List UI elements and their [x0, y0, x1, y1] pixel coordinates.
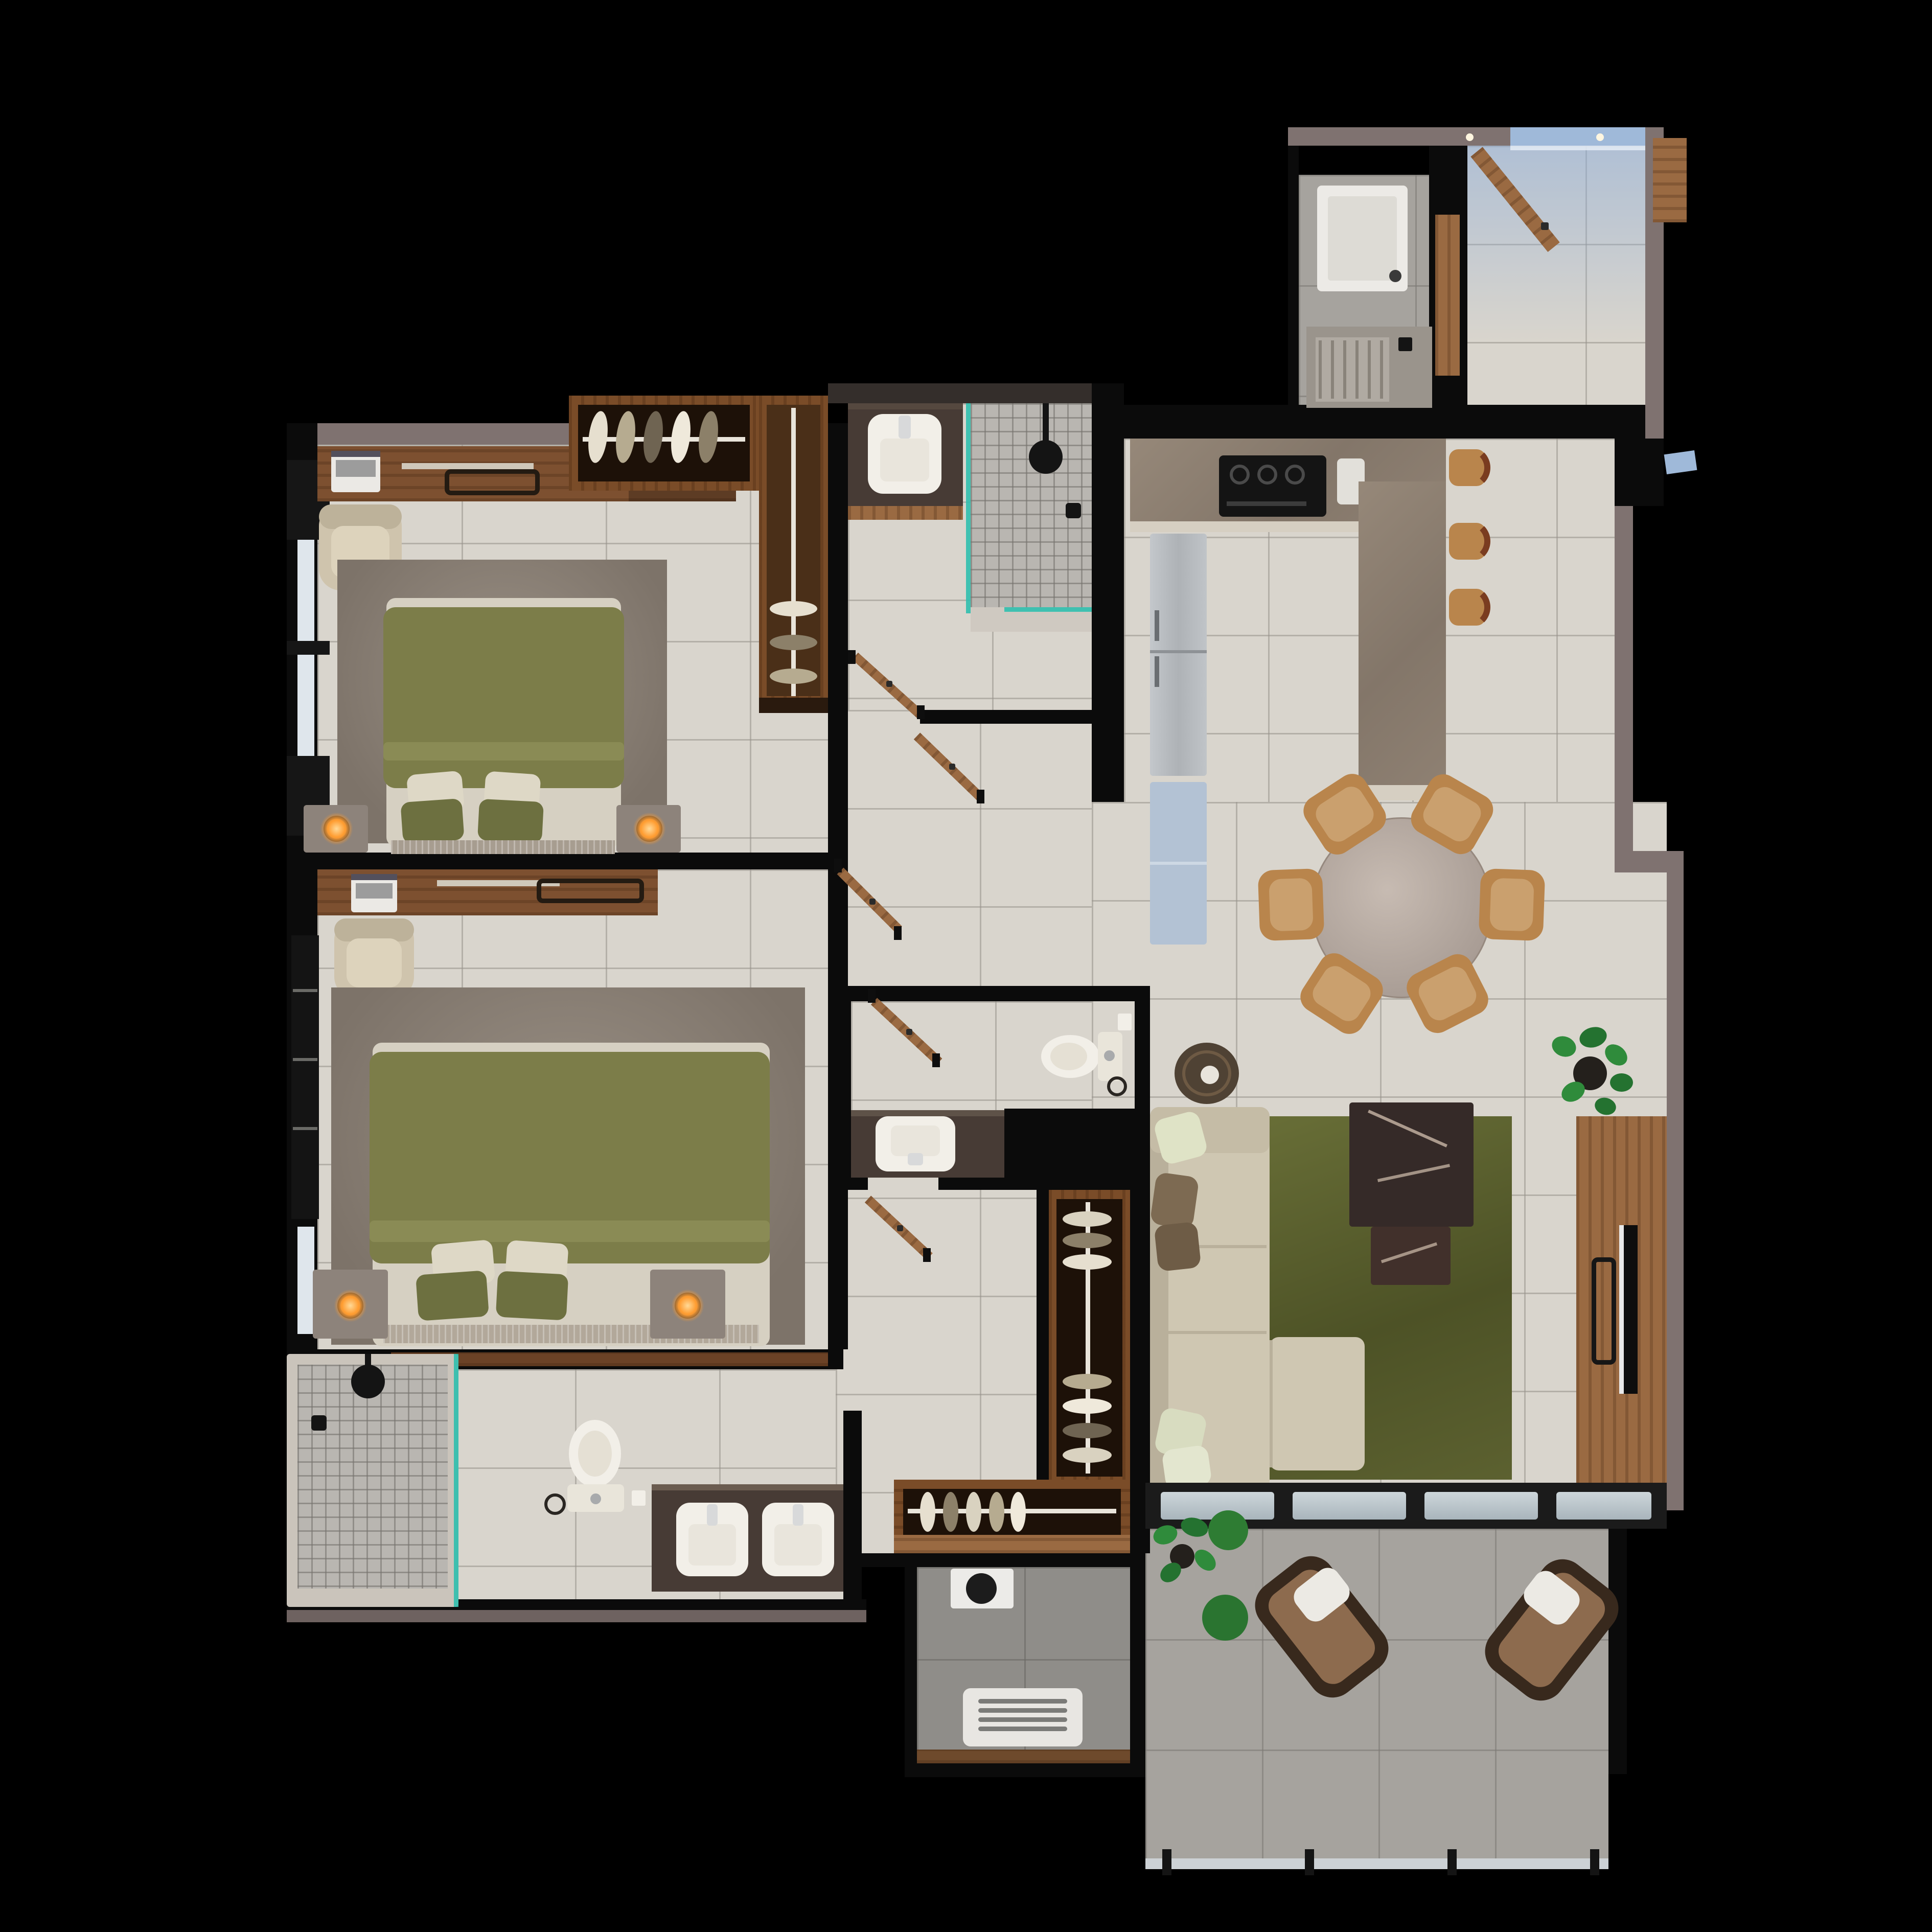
- bed1-bracket: [445, 469, 540, 495]
- bed1-duvet: [383, 607, 624, 788]
- monstera-leaf-4: [1610, 1073, 1633, 1092]
- mbath-scale: [544, 1493, 566, 1515]
- door-handle-3: [869, 899, 876, 905]
- slider-pane-2: [1293, 1492, 1406, 1520]
- mbath-vanity-edge: [652, 1484, 843, 1490]
- closet-h-front: [894, 1535, 1130, 1553]
- fridge-split: [1150, 650, 1207, 653]
- fridge-handle-a: [1155, 610, 1159, 641]
- mbath-toilet-button: [590, 1493, 601, 1504]
- bath2-glass-h: [1004, 607, 1092, 612]
- burner-3: [1285, 465, 1305, 485]
- closet-h-cloth-5: [1010, 1492, 1026, 1532]
- bed2-armchair-seat: [347, 938, 402, 987]
- wall-kitchen-right: [1615, 506, 1633, 869]
- bed1-laptop-screen: [331, 451, 380, 457]
- wall-bath2-top: [828, 383, 1092, 403]
- railing-post-1: [1162, 1849, 1171, 1875]
- fridge: [1150, 534, 1207, 776]
- bath2-faucet: [899, 416, 911, 439]
- powder-faucet: [908, 1153, 923, 1165]
- railing-post-4: [1590, 1849, 1599, 1875]
- closet-h-cloth-1: [920, 1492, 935, 1532]
- ac-slot-4: [978, 1727, 1067, 1731]
- sofa-chaise: [1270, 1337, 1365, 1470]
- ac-slot-1: [978, 1699, 1067, 1704]
- powder-toilet-button: [1104, 1050, 1115, 1061]
- kitchen-cabinet-seam: [1150, 862, 1207, 865]
- window-bed1-b: [297, 655, 314, 756]
- bed1-duvet-fold: [383, 742, 624, 761]
- mbath-sink-2-basin: [774, 1524, 822, 1566]
- bed2-laptop-screen: [351, 874, 397, 880]
- wall-bath2-bottom: [920, 710, 1092, 724]
- mbath-sink-1-basin: [688, 1524, 736, 1566]
- bed2-bracket: [537, 879, 644, 903]
- bath2-sink-basin: [880, 439, 929, 481]
- glass-frag-right: [1664, 450, 1697, 474]
- closet-v-cloth-1: [1063, 1211, 1112, 1227]
- utility-drain: [1398, 337, 1412, 351]
- wall-kitchen-entry: [1124, 405, 1645, 439]
- wall-bath2-right: [1092, 383, 1124, 802]
- washer-knob: [1389, 270, 1401, 282]
- tv-bracket: [1592, 1257, 1616, 1365]
- bed2-lamp-left: [334, 1290, 366, 1322]
- window-bed2: [297, 1227, 314, 1334]
- closet-v-cloth-4: [1063, 1374, 1112, 1389]
- powder-toilet-inner: [1050, 1043, 1087, 1070]
- ac-slot-2: [978, 1708, 1067, 1713]
- entry-light-b: [1596, 133, 1604, 141]
- balcony-railing: [1145, 1858, 1608, 1869]
- closet-v-cloth-3: [1063, 1254, 1112, 1270]
- door-stub-2: [848, 650, 856, 664]
- utility-door: [1435, 215, 1460, 376]
- bed1-vcloth-1: [770, 601, 817, 616]
- cooktop: [1219, 455, 1326, 517]
- wall-living-right: [1667, 869, 1684, 1510]
- mbath-faucet-1: [707, 1504, 718, 1526]
- entry-bench: [1653, 138, 1687, 222]
- pillow-brown-a: [1149, 1172, 1199, 1230]
- fridge-handle-b: [1155, 656, 1159, 687]
- mbath-shower-head: [351, 1365, 385, 1398]
- powder-vanity-edge: [851, 1110, 1004, 1116]
- dining-chair-4-seat: [1489, 878, 1534, 932]
- bath2-shower-control: [1066, 503, 1081, 518]
- bath2-glass-v: [966, 403, 971, 613]
- balcony-bush-2: [1202, 1595, 1248, 1641]
- coffee-table-small: [1371, 1227, 1451, 1285]
- powder-niche: [1004, 1109, 1150, 1190]
- shelf-box-bed1-mid: [287, 641, 330, 655]
- wall-ac-right: [1130, 1553, 1145, 1777]
- railing-post-3: [1447, 1849, 1457, 1875]
- balcony-bush-1: [1208, 1510, 1248, 1550]
- dining-chair-3-seat: [1269, 878, 1314, 932]
- entry-light-a: [1466, 133, 1474, 141]
- mbath-toilet-inner: [578, 1431, 612, 1477]
- closet-h-cloth-3: [966, 1492, 981, 1532]
- closet-h-cloth-4: [989, 1492, 1004, 1532]
- hallway-floor: [836, 710, 1092, 1001]
- window-bed1-a: [297, 540, 314, 641]
- bath2-counter-edge: [848, 403, 963, 409]
- mbath-shower-arm: [365, 1354, 371, 1369]
- floor-plan: [0, 0, 1932, 1932]
- shelf-unit-bed2: [291, 935, 319, 1219]
- wall-ac-bottom: [905, 1763, 1145, 1777]
- closet-v-cloth-5: [1063, 1398, 1112, 1414]
- shelf-line-bed2-c: [293, 1127, 317, 1130]
- bed2-lamp-right: [672, 1290, 704, 1322]
- bath2-shower-arm: [1043, 403, 1049, 443]
- closet-v-cloth-6: [1063, 1423, 1112, 1438]
- wall-masterbath-right: [843, 1411, 862, 1599]
- island: [1359, 481, 1446, 791]
- powder-tp: [1118, 1014, 1132, 1030]
- wall-balcony-right: [1608, 1529, 1627, 1774]
- wall-bed1-bed2: [287, 853, 836, 869]
- entry-glass-door: [1510, 127, 1645, 146]
- door-stub-8: [923, 1248, 931, 1262]
- bath2-shower-head: [1029, 440, 1063, 474]
- wall-kitchen-right-fill: [1615, 439, 1664, 506]
- bed2-pillow-g2: [496, 1271, 569, 1320]
- burner-1: [1230, 465, 1250, 485]
- mbath-faucet-2: [793, 1504, 803, 1526]
- slider-pane-3: [1424, 1492, 1538, 1520]
- utility-rack-slats: [1319, 340, 1386, 399]
- wall-masterbath-outer: [287, 1610, 866, 1622]
- bed1-armchair-back: [319, 504, 402, 529]
- bed2-duvet-fold: [370, 1221, 770, 1242]
- bed1-laptop-kb: [336, 460, 376, 477]
- sofa-chaise-seam: [1270, 1340, 1273, 1467]
- door-handle-5: [897, 1225, 903, 1231]
- door-stub-7: [932, 1053, 940, 1067]
- mbath-glass: [454, 1354, 458, 1607]
- door-stub-3: [977, 790, 984, 803]
- closet-h-cloth-2: [943, 1492, 958, 1532]
- slider-pane-4: [1556, 1492, 1651, 1520]
- stool-1-back: [1447, 446, 1490, 489]
- wall-bedrooms-right: [828, 423, 848, 1349]
- entry-blue-light: [1441, 146, 1645, 376]
- bed1-vcloth-3: [770, 669, 817, 684]
- door-handle-1: [886, 681, 892, 687]
- door-handle-2: [949, 764, 955, 770]
- bed1-shelf-strip: [402, 463, 534, 469]
- bed1-pillow-g1: [400, 798, 464, 844]
- closet-v-cloth-2: [1063, 1233, 1112, 1248]
- shelf-line-bed2-a: [293, 989, 317, 992]
- burner-2: [1257, 465, 1277, 485]
- ac-slot-3: [978, 1717, 1067, 1722]
- wall-utility-left: [1288, 127, 1299, 439]
- shelf-line-bed2-b: [293, 1058, 317, 1061]
- side-table-cup: [1201, 1066, 1219, 1084]
- door-stub-5: [894, 926, 902, 940]
- tv-screen-edge: [1619, 1225, 1624, 1394]
- door-stub-6: [868, 989, 876, 1003]
- ac-sill: [917, 1750, 1130, 1763]
- bed1-lamp-right: [633, 813, 665, 845]
- door-stub-1: [917, 705, 925, 719]
- bed1-wardrobe-v-rail: [791, 408, 796, 696]
- cooktop-controls: [1227, 501, 1306, 506]
- bed1-vcloth-2: [770, 635, 817, 650]
- door-stub-4: [834, 859, 842, 872]
- bed2-pillow-g1: [416, 1270, 489, 1321]
- wall-corridor-bottom: [836, 1553, 1145, 1567]
- stool-2-back: [1447, 520, 1490, 563]
- closet-v-cloth-7: [1063, 1447, 1112, 1463]
- mbath-shower-control: [311, 1415, 327, 1431]
- sofa-seam-b: [1168, 1331, 1267, 1334]
- coffee-table-big: [1349, 1102, 1474, 1227]
- entry-glass-glow: [1510, 146, 1645, 150]
- bed1-bench: [391, 840, 615, 854]
- mbath-shower-mosaic: [297, 1365, 448, 1589]
- wall-powder-top: [836, 986, 1150, 1001]
- pillow-brown-b: [1154, 1222, 1202, 1272]
- powder-sink-basin: [891, 1125, 940, 1156]
- bed1-lamp-left: [320, 813, 353, 845]
- mbath-tp: [632, 1490, 646, 1506]
- wall-ac-left: [905, 1553, 917, 1777]
- ac-heater-hole: [966, 1573, 997, 1604]
- stool-3-back: [1447, 586, 1490, 629]
- door-handle-4: [906, 1029, 912, 1035]
- wall-entry-top: [1288, 127, 1510, 146]
- bath2-cabinet-wood: [848, 506, 963, 520]
- entry-door-handle: [1541, 222, 1549, 230]
- bed1-wardrobe-v-shelf: [759, 698, 828, 713]
- bed2-laptop-kb: [356, 883, 393, 899]
- railing-post-2: [1305, 1849, 1314, 1875]
- powder-freshener: [1107, 1076, 1127, 1096]
- washer-lid: [1328, 196, 1397, 281]
- wall-powder-left: [836, 986, 851, 1181]
- bed1-pillow-g2: [477, 799, 544, 843]
